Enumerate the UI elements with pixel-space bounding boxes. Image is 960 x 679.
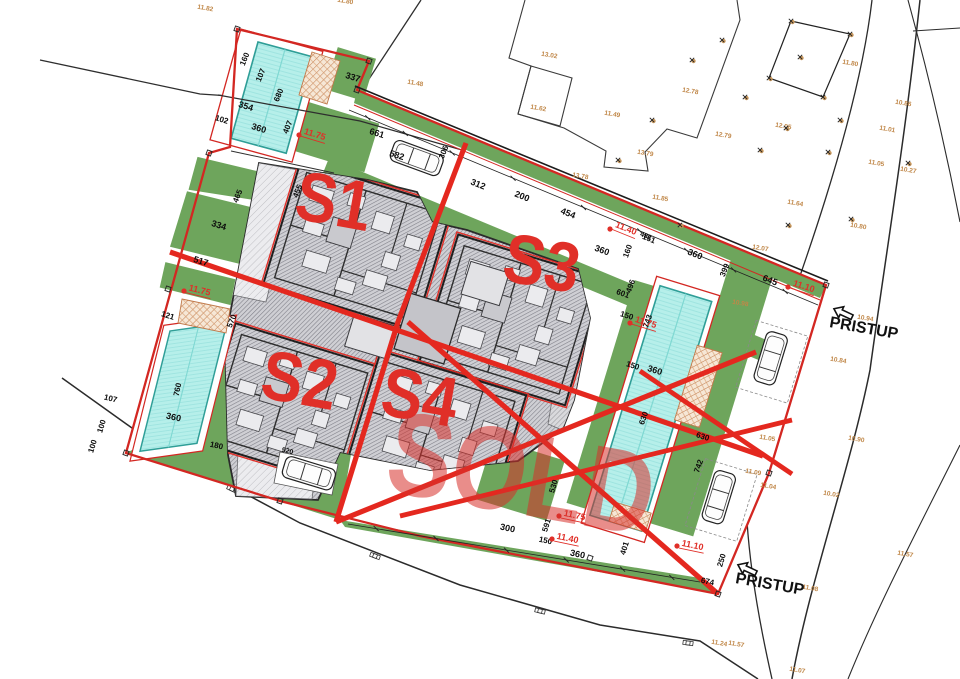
svg-text:S1: S1 [290, 156, 378, 246]
svg-text:S2: S2 [256, 335, 344, 425]
svg-text:S3: S3 [498, 218, 586, 308]
